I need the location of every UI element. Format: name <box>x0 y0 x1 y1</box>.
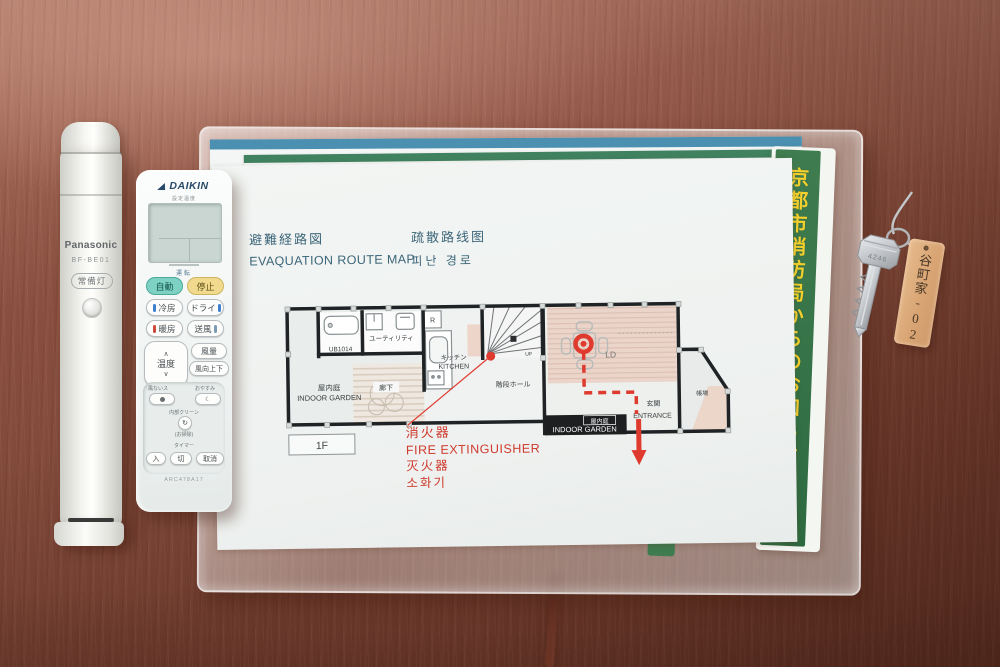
map-title-block-left: 避難経路図 EVAQUATION ROUTE MAP <box>249 227 415 268</box>
cool-button: 冷房 <box>146 299 183 316</box>
extinguisher-ko: 소화기 <box>406 473 540 491</box>
lcd-line-h <box>159 238 221 239</box>
remote-model: ARC478A17 <box>136 477 232 483</box>
lamp-button-label: 常備灯 <box>71 273 113 289</box>
stop-button: 停止 <box>187 277 224 295</box>
fan-bar-icon <box>214 325 217 333</box>
exit-arrow-head <box>632 450 647 465</box>
map-title-block-right: 疏散路线图 피난 경로 <box>411 226 487 269</box>
dry-label: ドライ <box>190 302 216 314</box>
extinguisher-en: FIRE EXTINGUISHER <box>406 440 540 458</box>
entrance-label-jp: 玄関 <box>646 399 660 408</box>
garden-label-en: INDOOR GARDEN <box>297 393 361 403</box>
lcd-caption: 設定温度 <box>136 195 232 202</box>
ld-label: LD <box>605 349 616 359</box>
evacuation-map-sheet: 避難経路図 EVAQUATION ROUTE MAP 疏散路线图 피난 경로 <box>212 158 797 550</box>
lcd-sub-mark <box>169 264 199 266</box>
daikin-remote: DAIKIN 設定温度 運転 自動 停止 冷房 ドライ 暖房 送風 ∧ 温度 <box>136 170 232 512</box>
kitchen-label-en: KITCHEN <box>438 363 469 370</box>
cool-drop-icon <box>153 304 156 312</box>
clean-button: ↻ <box>178 416 192 430</box>
heat-button: 暖房 <box>146 320 183 337</box>
swing-button: 風向上下 <box>189 361 229 376</box>
garden-bar: 屋内庭 INDOOR GARDEN <box>545 414 627 435</box>
lcd-screen <box>148 203 222 263</box>
sleep-button: ☾ <box>195 393 221 405</box>
cap-seam <box>60 152 122 154</box>
comfort-fan-icon <box>160 397 165 402</box>
map-title-zh: 疏散路线图 <box>411 226 486 246</box>
bathtub-icon <box>324 316 358 334</box>
operation-label: 運転 <box>136 268 232 277</box>
photo-wood-table: 京都市消防局からのお知らせです。 避難経路図 EVAQUATION ROUTE … <box>0 0 1000 667</box>
kitchen-label-jp: キッチン <box>441 353 467 361</box>
temp-rocker-button: ∧ 温度 ∨ <box>144 341 188 387</box>
front-desk-label: 帳場 <box>696 389 708 397</box>
temp-label: 温度 <box>157 360 175 369</box>
door-key: 4246 <box>840 233 902 341</box>
floor-label: 1F <box>316 440 328 452</box>
clean-sub-label: (お掃除) <box>143 431 225 438</box>
corridor-deck <box>353 363 425 424</box>
timer-label: タイマー <box>143 442 225 449</box>
body-seam <box>60 194 122 196</box>
extinguisher-legend: 消火器 FIRE EXTINGUISHER 灭火器 소화기 <box>406 423 541 491</box>
temp-up-icon: ∧ <box>163 351 168 358</box>
dry-drop-icon <box>218 304 221 312</box>
flashlight-body: Panasonic BF-BE01 常備灯 <box>60 152 122 530</box>
kitchen-floor-strip <box>467 324 482 356</box>
fridge-label: R <box>430 317 435 324</box>
daikin-brand-text: DAIKIN <box>169 180 208 192</box>
cool-label: 冷房 <box>158 302 175 314</box>
extinguisher-jp: 消火器 <box>406 423 540 441</box>
corridor-label: 廊下 <box>379 383 393 392</box>
fan-button: 送風 <box>187 320 224 337</box>
garden-bar-en: INDOOR GARDEN <box>553 424 617 434</box>
tag-hole <box>923 245 929 251</box>
flashlight-base <box>54 522 124 546</box>
comfort-label: 風ないス <box>148 385 168 392</box>
sleep-moon-icon: ☾ <box>205 396 210 403</box>
entrance-label-en: ENTRANCE <box>633 413 672 421</box>
dry-button: ドライ <box>187 299 224 316</box>
power-button <box>82 298 102 318</box>
ld-wood-floor <box>547 306 677 384</box>
fan-speed-button: 風量 <box>191 343 227 359</box>
flashlight-brand: Panasonic <box>60 240 122 251</box>
flashlight-model: BF-BE01 <box>60 257 122 264</box>
clean-cycle-icon: ↻ <box>182 419 188 427</box>
garden-label-jp: 屋内庭 <box>318 382 341 392</box>
timer-cancel-button: 取消 <box>196 452 224 465</box>
bath-label: UB1014 <box>329 346 353 353</box>
tag-text: 谷町家-02 <box>902 252 935 344</box>
map-title-en: EVAQUATION ROUTE MAP <box>249 252 415 268</box>
temp-down-icon: ∨ <box>163 371 168 378</box>
fan-label: 送風 <box>194 323 211 335</box>
remote-lower-panel: 風ないス おやすみ ☾ 内部クリーン ↻ (お掃除) タイマー 入 切 取消 <box>143 382 225 474</box>
heat-label: 暖房 <box>158 323 175 335</box>
timer-off-button: 切 <box>170 452 192 465</box>
lcd-line-v <box>189 238 190 262</box>
timer-on-button: 入 <box>146 452 166 465</box>
extinguisher-zh: 灭火器 <box>406 456 540 474</box>
utility-label: ユーティリティ <box>369 334 414 343</box>
daikin-logo: DAIKIN <box>136 180 232 192</box>
comfort-button <box>149 393 175 405</box>
clean-label: 内部クリーン <box>143 409 225 416</box>
daikin-mark-icon <box>158 183 170 190</box>
map-title-ko: 피난 경로 <box>411 251 486 269</box>
sleep-label: おやすみ <box>195 385 215 392</box>
panasonic-flashlight: Panasonic BF-BE01 常備灯 <box>50 118 130 558</box>
stair-hall-label: 階段ホール <box>496 380 531 389</box>
heat-bar-icon <box>153 325 156 333</box>
auto-button: 自動 <box>146 277 183 295</box>
staircase <box>482 305 543 358</box>
map-title-jp: 避難経路図 <box>249 227 415 248</box>
up-label: UP <box>525 352 533 358</box>
